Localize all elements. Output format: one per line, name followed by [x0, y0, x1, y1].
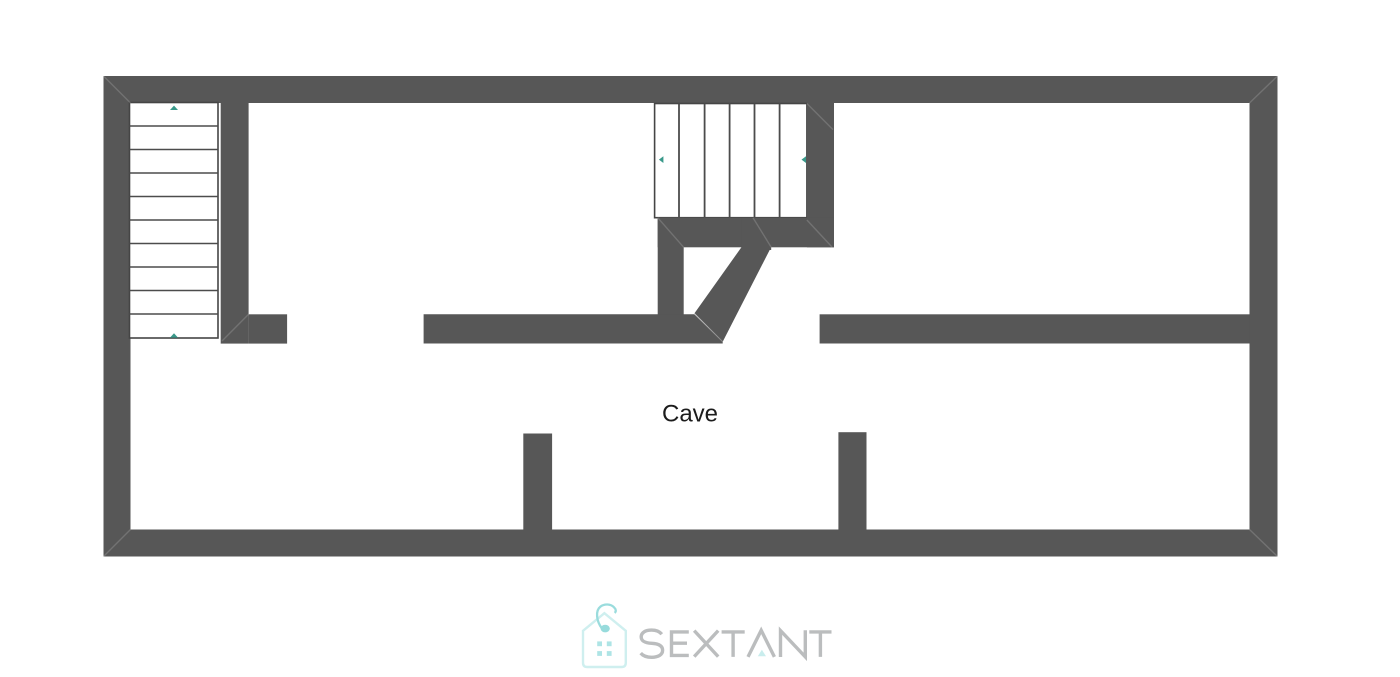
svg-text:Cave: Cave [662, 401, 718, 428]
